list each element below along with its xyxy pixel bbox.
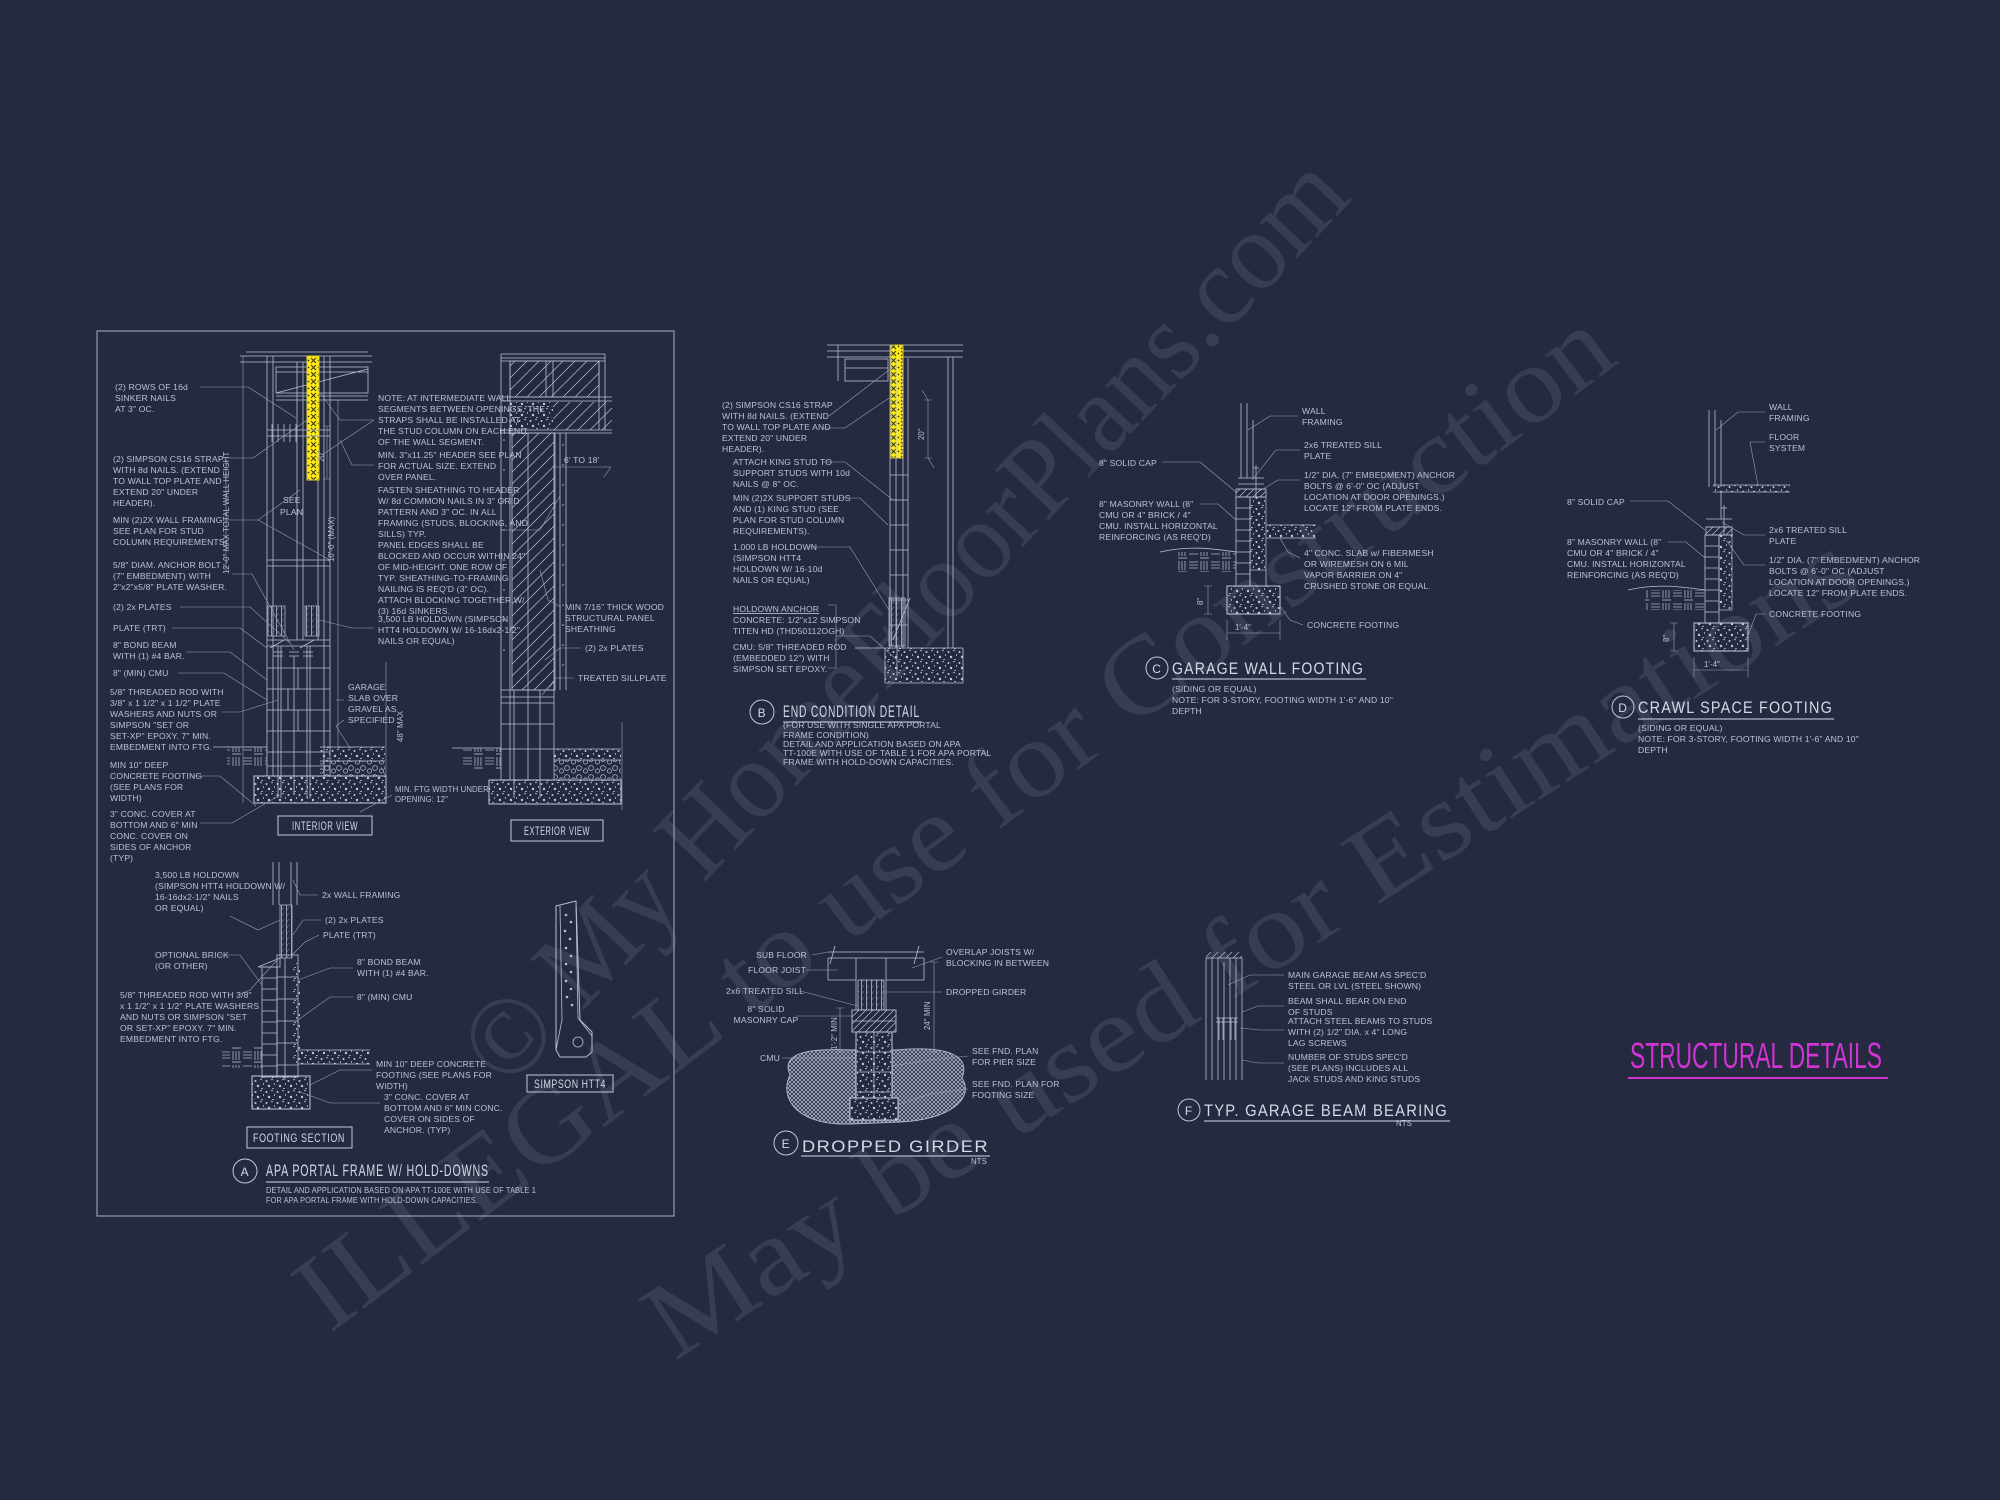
svg-text:CMU OR 4" BRICK / 4": CMU OR 4" BRICK / 4" (1567, 548, 1659, 558)
svg-text:(2) 2x PLATES: (2) 2x PLATES (113, 602, 172, 612)
svg-text:1'-2" MIN: 1'-2" MIN (830, 1017, 839, 1050)
svg-text:CONC. COVER ON: CONC. COVER ON (110, 831, 188, 841)
svg-text:3,500 LB HOLDOWN (SIMPSON: 3,500 LB HOLDOWN (SIMPSON (378, 614, 508, 624)
svg-text:PANEL EDGES SHALL BE: PANEL EDGES SHALL BE (378, 540, 484, 550)
svg-text:3,500 LB HOLDOWN: 3,500 LB HOLDOWN (155, 870, 239, 880)
svg-text:NAILS OR EQUAL): NAILS OR EQUAL) (378, 636, 455, 646)
svg-text:(EMBEDDED 12") WITH: (EMBEDDED 12") WITH (733, 653, 830, 663)
svg-text:NOTE: FOR 3-STORY, FOOTING WID: NOTE: FOR 3-STORY, FOOTING WIDTH 1'-6" A… (1172, 695, 1393, 705)
svg-text:LOCATION AT DOOR OPENINGS.): LOCATION AT DOOR OPENINGS.) (1769, 577, 1910, 587)
svg-text:EXTEND 20" UNDER: EXTEND 20" UNDER (722, 433, 807, 443)
svg-text:(SIMPSON HTT4 HOLDOWN W/: (SIMPSON HTT4 HOLDOWN W/ (155, 881, 286, 891)
svg-text:CONCRETE FOOTING: CONCRETE FOOTING (1307, 620, 1399, 630)
svg-text:8" BOND BEAM: 8" BOND BEAM (113, 640, 177, 650)
svg-text:6' TO 18': 6' TO 18' (564, 455, 600, 465)
svg-text:(7" EMBEDMENT) WITH: (7" EMBEDMENT) WITH (113, 571, 211, 581)
svg-text:2"x2"x5/8" PLATE WASHER.: 2"x2"x5/8" PLATE WASHER. (113, 582, 227, 592)
svg-text:REQUIREMENTS).: REQUIREMENTS). (733, 526, 810, 536)
svg-text:24" MIN: 24" MIN (923, 1001, 932, 1030)
svg-text:FRAMING: FRAMING (1769, 413, 1810, 423)
svg-text:16-16dx2-1/2" NAILS: 16-16dx2-1/2" NAILS (155, 892, 239, 902)
svg-text:BEAM SHALL BEAR ON END: BEAM SHALL BEAR ON END (1288, 996, 1407, 1006)
svg-text:MIN 10" DEEP: MIN 10" DEEP (110, 760, 168, 770)
svg-text:20": 20" (317, 450, 326, 462)
svg-text:NTS: NTS (1396, 1119, 1412, 1128)
svg-text:COVER ON SIDES OF: COVER ON SIDES OF (384, 1114, 475, 1124)
svg-text:2x WALL FRAMING: 2x WALL FRAMING (322, 890, 401, 900)
svg-text:WITH (1) #4 BAR.: WITH (1) #4 BAR. (357, 968, 429, 978)
svg-text:DEPTH: DEPTH (1172, 706, 1202, 716)
svg-text:48" MAX: 48" MAX (396, 710, 405, 742)
svg-text:FOOTING SIZE: FOOTING SIZE (972, 1090, 1035, 1100)
svg-text:WASHERS AND NUTS OR: WASHERS AND NUTS OR (110, 709, 217, 719)
svg-text:SIMPSON "SET OR: SIMPSON "SET OR (110, 720, 189, 730)
svg-text:SPECIFIED: SPECIFIED (348, 715, 395, 725)
svg-text:2x6 TREATED SILL: 2x6 TREATED SILL (726, 986, 804, 996)
svg-text:REINFORCING (AS REQ'D): REINFORCING (AS REQ'D) (1567, 570, 1679, 580)
svg-text:BOLTS @ 6'-0" OC (ADJUST: BOLTS @ 6'-0" OC (ADJUST (1304, 481, 1420, 491)
svg-text:8" BOND BEAM: 8" BOND BEAM (357, 957, 421, 967)
svg-text:3" CONC. COVER AT: 3" CONC. COVER AT (110, 809, 196, 819)
svg-text:NTS: NTS (971, 1157, 987, 1166)
svg-text:(OR OTHER): (OR OTHER) (155, 961, 208, 971)
svg-text:MIN. FTG WIDTH UNDER: MIN. FTG WIDTH UNDER (395, 785, 489, 794)
svg-text:CMU. INSTALL HORIZONTAL: CMU. INSTALL HORIZONTAL (1567, 559, 1686, 569)
svg-text:CMU OR 4" BRICK / 4": CMU OR 4" BRICK / 4" (1099, 510, 1191, 520)
svg-text:OR EQUAL): OR EQUAL) (155, 903, 204, 913)
svg-text:FLOOR JOIST: FLOOR JOIST (748, 965, 807, 975)
svg-text:10'-0" (MAX): 10'-0" (MAX) (327, 516, 336, 562)
svg-text:MIN (2)2X WALL FRAMING.: MIN (2)2X WALL FRAMING. (113, 515, 225, 525)
svg-text:WALL: WALL (1302, 406, 1326, 416)
svg-text:TO WALL TOP PLATE AND: TO WALL TOP PLATE AND (113, 476, 222, 486)
svg-text:NOTE: FOR 3-STORY, FOOTING WID: NOTE: FOR 3-STORY, FOOTING WIDTH 1'-6" A… (1638, 734, 1859, 744)
svg-text:HEADER).: HEADER). (113, 498, 155, 508)
svg-text:8": 8" (1662, 635, 1671, 642)
svg-text:TITEN HD (THD50112OGH): TITEN HD (THD50112OGH) (733, 626, 845, 636)
svg-text:1,000 LB HOLDOWN: 1,000 LB HOLDOWN (733, 542, 817, 552)
svg-text:TO WALL TOP PLATE AND: TO WALL TOP PLATE AND (722, 422, 831, 432)
svg-text:3/8" x 1 1/2" x 1 1/2" PLATE: 3/8" x 1 1/2" x 1 1/2" PLATE (110, 698, 221, 708)
svg-text:MIN. 3"x11.25" HEADER SEE PLAN: MIN. 3"x11.25" HEADER SEE PLAN (378, 450, 522, 460)
svg-text:TYP. SHEATHING-TO-FRAMING: TYP. SHEATHING-TO-FRAMING (378, 573, 509, 583)
svg-text:MAIN GARAGE BEAM AS SPEC'D: MAIN GARAGE BEAM AS SPEC'D (1288, 970, 1426, 980)
svg-text:BOTTOM AND 6" MIN: BOTTOM AND 6" MIN (110, 820, 198, 830)
svg-text:AND (1) KING STUD (SEE: AND (1) KING STUD (SEE (733, 504, 839, 514)
svg-text:MIN 7/16" THICK WOOD: MIN 7/16" THICK WOOD (565, 602, 664, 612)
svg-text:2x6 TREATED SILL: 2x6 TREATED SILL (1304, 440, 1382, 450)
svg-text:x 1 1/2" x 1 1/2" PLATE WASHER: x 1 1/2" x 1 1/2" PLATE WASHERS (120, 1001, 259, 1011)
svg-text:HOLDOWN ANCHOR: HOLDOWN ANCHOR (733, 604, 819, 614)
svg-text:DROPPED GIRDER: DROPPED GIRDER (946, 987, 1026, 997)
svg-text:GARAGE WALL FOOTING: GARAGE WALL FOOTING (1172, 659, 1364, 678)
svg-text:12'-0" MAX TOTAL WALL HEIGHT: 12'-0" MAX TOTAL WALL HEIGHT (222, 452, 231, 574)
svg-text:GARAGE: GARAGE (348, 682, 386, 692)
svg-text:MIN (2)2X SUPPORT STUDS: MIN (2)2X SUPPORT STUDS (733, 493, 851, 503)
svg-text:8" SOLID: 8" SOLID (747, 1004, 784, 1014)
svg-text:B: B (758, 706, 767, 720)
svg-text:BOTTOM AND 6" MIN CONC.: BOTTOM AND 6" MIN CONC. (384, 1103, 503, 1113)
svg-text:FLOOR: FLOOR (1769, 432, 1799, 442)
svg-text:LOCATE 12" FROM PLATE ENDS.: LOCATE 12" FROM PLATE ENDS. (1769, 588, 1907, 598)
svg-text:DETAIL AND APPLICATION BASED O: DETAIL AND APPLICATION BASED ON APA TT-1… (266, 1185, 536, 1195)
svg-text:NAILING IS REQ'D (3" OC).: NAILING IS REQ'D (3" OC). (378, 584, 489, 594)
svg-text:(2) 2x PLATES: (2) 2x PLATES (325, 915, 384, 925)
svg-text:AT 3" OC.: AT 3" OC. (115, 404, 154, 414)
svg-text:SLAB OVER: SLAB OVER (348, 693, 398, 703)
svg-text:COLUMN REQUIREMENTS.: COLUMN REQUIREMENTS. (113, 537, 227, 547)
svg-text:1/2" DIA. (7" EMBEDMENT) ANCHO: 1/2" DIA. (7" EMBEDMENT) ANCHOR (1769, 555, 1920, 565)
svg-text:DEPTH: DEPTH (1638, 745, 1668, 755)
svg-text:FRAMING (STUDS, BLOCKING, AND: FRAMING (STUDS, BLOCKING, AND (378, 518, 528, 528)
svg-text:WALL: WALL (1769, 402, 1793, 412)
svg-text:FOOTING (SEE PLANS FOR: FOOTING (SEE PLANS FOR (376, 1070, 492, 1080)
svg-text:CONCRETE: 1/2"x12 SIMPSON: CONCRETE: 1/2"x12 SIMPSON (733, 615, 861, 625)
svg-text:(SEE PLANS) INCLUDES ALL: (SEE PLANS) INCLUDES ALL (1288, 1063, 1408, 1073)
svg-text:(TYP): (TYP) (110, 853, 133, 863)
svg-text:WITH 8d NAILS. (EXTEND: WITH 8d NAILS. (EXTEND (113, 465, 220, 475)
svg-text:5/8" THREADED ROD WITH 3/8": 5/8" THREADED ROD WITH 3/8" (120, 990, 252, 1000)
svg-text:(FOR USE WITH SINGLE APA PORTA: (FOR USE WITH SINGLE APA PORTAL (783, 720, 941, 730)
svg-text:FRAMING: FRAMING (1302, 417, 1343, 427)
svg-text:CRAWL SPACE FOOTING: CRAWL SPACE FOOTING (1638, 698, 1833, 717)
svg-text:(2) SIMPSON CS16 STRAP: (2) SIMPSON CS16 STRAP (113, 454, 224, 464)
svg-text:EXTEND 20" UNDER: EXTEND 20" UNDER (113, 487, 198, 497)
svg-text:SYSTEM: SYSTEM (1769, 443, 1805, 453)
svg-text:STRUCTURAL DETAILS: STRUCTURAL DETAILS (1630, 1035, 1882, 1076)
svg-text:HEADER).: HEADER). (722, 444, 764, 454)
svg-text:A: A (241, 1165, 250, 1179)
svg-text:8" (MIN) CMU: 8" (MIN) CMU (113, 668, 168, 678)
svg-text:4" CONC. SLAB w/ FIBERMESH: 4" CONC. SLAB w/ FIBERMESH (1304, 548, 1434, 558)
svg-text:2x6 TREATED SILL: 2x6 TREATED SILL (1769, 525, 1847, 535)
svg-text:GRAVEL AS: GRAVEL AS (348, 704, 397, 714)
svg-text:WITH (1) #4 BAR.: WITH (1) #4 BAR. (113, 651, 185, 661)
svg-text:NAILS OR EQUAL): NAILS OR EQUAL) (733, 575, 810, 585)
svg-text:PLATE: PLATE (1304, 451, 1331, 461)
svg-text:5/8" THREADED ROD WITH: 5/8" THREADED ROD WITH (110, 687, 224, 697)
svg-text:SEE FND. PLAN: SEE FND. PLAN (972, 1046, 1038, 1056)
svg-text:TYP. GARAGE BEAM BEARING: TYP. GARAGE BEAM BEARING (1204, 1101, 1448, 1120)
svg-text:8" MASONRY WALL (8": 8" MASONRY WALL (8" (1099, 499, 1193, 509)
svg-text:INTERIOR VIEW: INTERIOR VIEW (292, 819, 358, 833)
svg-text:EMBEDMENT INTO FTG.: EMBEDMENT INTO FTG. (120, 1034, 222, 1044)
svg-text:C: C (1152, 662, 1161, 676)
svg-text:APA PORTAL FRAME W/ HOLD-DOWNS: APA PORTAL FRAME W/ HOLD-DOWNS (266, 1161, 489, 1180)
svg-text:ATTACH STEEL BEAMS TO STUDS: ATTACH STEEL BEAMS TO STUDS (1288, 1016, 1433, 1026)
svg-text:FOR ACTUAL SIZE. EXTEND: FOR ACTUAL SIZE. EXTEND (378, 461, 496, 471)
svg-text:20": 20" (917, 428, 926, 440)
svg-text:STRAPS SHALL BE INSTALLED AT: STRAPS SHALL BE INSTALLED AT (378, 415, 521, 425)
svg-text:LOCATE 12" FROM PLATE ENDS.: LOCATE 12" FROM PLATE ENDS. (1304, 503, 1442, 513)
svg-text:CMU: CMU (760, 1053, 780, 1063)
svg-text:LAG SCREWS: LAG SCREWS (1288, 1038, 1347, 1048)
svg-text:SINKER NAILS: SINKER NAILS (115, 393, 176, 403)
svg-text:EXTERIOR VIEW: EXTERIOR VIEW (524, 824, 590, 838)
svg-text:FOR APA PORTAL FRAME WITH HOLD: FOR APA PORTAL FRAME WITH HOLD-DOWN CAPA… (266, 1195, 478, 1205)
svg-text:WIDTH): WIDTH) (376, 1081, 408, 1091)
svg-text:D: D (1618, 701, 1627, 715)
svg-text:1/2" DIA. (7" EMBEDMENT) ANCHO: 1/2" DIA. (7" EMBEDMENT) ANCHOR (1304, 470, 1455, 480)
svg-text:8" (MIN) CMU: 8" (MIN) CMU (357, 992, 412, 1002)
svg-text:CONCRETE FOOTING: CONCRETE FOOTING (1769, 609, 1861, 619)
svg-text:FRAME WITH HOLD-DOWN CAPACITIE: FRAME WITH HOLD-DOWN CAPACITIES. (783, 757, 954, 767)
svg-text:EMBEDMENT INTO FTG.: EMBEDMENT INTO FTG. (110, 742, 212, 752)
svg-text:PLATE: PLATE (1769, 536, 1796, 546)
svg-text:SHEATHING: SHEATHING (565, 624, 616, 634)
svg-text:SEE PLAN FOR STUD: SEE PLAN FOR STUD (113, 526, 204, 536)
svg-text:SEE FND. PLAN FOR: SEE FND. PLAN FOR (972, 1079, 1060, 1089)
svg-text:F: F (1185, 1104, 1193, 1118)
svg-text:CONCRETE FOOTING: CONCRETE FOOTING (110, 771, 202, 781)
svg-text:END CONDITION DETAIL: END CONDITION DETAIL (783, 702, 920, 721)
svg-text:PLAN FOR STUD COLUMN: PLAN FOR STUD COLUMN (733, 515, 844, 525)
svg-text:8": 8" (1196, 598, 1205, 605)
svg-text:OVERLAP JOISTS W/: OVERLAP JOISTS W/ (946, 947, 1035, 957)
svg-text:PLATE (TRT): PLATE (TRT) (323, 930, 376, 940)
svg-text:BLOCKED AND OCCUR WITHIN 24": BLOCKED AND OCCUR WITHIN 24" (378, 551, 525, 561)
svg-text:THE STUD COLUMN ON EACH END: THE STUD COLUMN ON EACH END (378, 426, 527, 436)
svg-text:NUMBER OF STUDS SPEC'D: NUMBER OF STUDS SPEC'D (1288, 1052, 1408, 1062)
svg-text:(2) SIMPSON CS16 STRAP: (2) SIMPSON CS16 STRAP (722, 400, 833, 410)
svg-text:ATTACH KING STUD TO: ATTACH KING STUD TO (733, 457, 832, 467)
svg-text:8" MASONRY WALL (8": 8" MASONRY WALL (8" (1567, 537, 1661, 547)
svg-text:SIDES OF ANCHOR: SIDES OF ANCHOR (110, 842, 192, 852)
svg-text:1'-4": 1'-4" (1704, 660, 1720, 669)
svg-text:OR SET-XP" EPOXY. 7" MIN.: OR SET-XP" EPOXY. 7" MIN. (120, 1023, 237, 1033)
svg-text:FASTEN SHEATHING TO HEADER: FASTEN SHEATHING TO HEADER (378, 485, 519, 495)
svg-text:OR WIREMESH ON 6 MIL: OR WIREMESH ON 6 MIL (1304, 559, 1409, 569)
svg-text:NOTE: AT INTERMEDIATE WALL: NOTE: AT INTERMEDIATE WALL (378, 393, 512, 403)
svg-text:WITH (2) 1/2" DIA. x 4" LONG: WITH (2) 1/2" DIA. x 4" LONG (1288, 1027, 1407, 1037)
svg-text:CMU: 5/8" THREADED ROD: CMU: 5/8" THREADED ROD (733, 642, 847, 652)
svg-text:HTT4 HOLDOWN W/ 16-16dx2-1/2": HTT4 HOLDOWN W/ 16-16dx2-1/2" (378, 625, 520, 635)
svg-text:ATTACH BLOCKING TOGETHER W/: ATTACH BLOCKING TOGETHER W/ (378, 595, 525, 605)
svg-text:DROPPED GIRDER: DROPPED GIRDER (802, 1137, 989, 1156)
svg-text:(2) ROWS OF 16d: (2) ROWS OF 16d (115, 382, 188, 392)
svg-text:OF MID-HEIGHT. ONE ROW OF: OF MID-HEIGHT. ONE ROW OF (378, 562, 507, 572)
svg-text:W/ 8d COMMON NAILS IN 3" GRID: W/ 8d COMMON NAILS IN 3" GRID (378, 496, 520, 506)
svg-text:OPTIONAL BRICK: OPTIONAL BRICK (155, 950, 229, 960)
svg-text:E: E (782, 1137, 791, 1151)
svg-text:AND NUTS OR SIMPSON "SET: AND NUTS OR SIMPSON "SET (120, 1012, 248, 1022)
svg-text:FOR PIER SIZE: FOR PIER SIZE (972, 1057, 1036, 1067)
svg-text:MASONRY CAP: MASONRY CAP (734, 1015, 799, 1025)
svg-text:CRUSHED STONE OR EQUAL.: CRUSHED STONE OR EQUAL. (1304, 581, 1431, 591)
svg-text:SET-XP" EPOXY. 7" MIN.: SET-XP" EPOXY. 7" MIN. (110, 731, 211, 741)
svg-text:BOLTS @ 6'-0" OC (ADJUST: BOLTS @ 6'-0" OC (ADJUST (1769, 566, 1885, 576)
svg-text:TREATED SILLPLATE: TREATED SILLPLATE (578, 673, 667, 683)
svg-text:1'-4": 1'-4" (1235, 623, 1251, 632)
svg-text:3" CONC. COVER AT: 3" CONC. COVER AT (384, 1092, 470, 1102)
svg-text:OVER PANEL.: OVER PANEL. (378, 472, 436, 482)
svg-text:PLATE (TRT): PLATE (TRT) (113, 623, 166, 633)
svg-text:BLOCKING IN BETWEEN: BLOCKING IN BETWEEN (946, 958, 1049, 968)
svg-text:REINFORCING (AS REQ'D): REINFORCING (AS REQ'D) (1099, 532, 1211, 542)
svg-text:OF THE WALL SEGMENT.: OF THE WALL SEGMENT. (378, 437, 484, 447)
svg-text:HOLDOWN W/ 16-10d: HOLDOWN W/ 16-10d (733, 564, 823, 574)
svg-text:MIN 10" DEEP CONCRETE: MIN 10" DEEP CONCRETE (376, 1059, 486, 1069)
svg-text:WIDTH): WIDTH) (110, 793, 142, 803)
svg-text:SILLS) TYP.: SILLS) TYP. (378, 529, 426, 539)
svg-text:NAILS @ 8" OC.: NAILS @ 8" OC. (733, 479, 799, 489)
svg-text:CMU. INSTALL HORIZONTAL: CMU. INSTALL HORIZONTAL (1099, 521, 1218, 531)
svg-text:(SEE PLANS FOR: (SEE PLANS FOR (110, 782, 183, 792)
svg-text:5/8" DIAM. ANCHOR BOLT: 5/8" DIAM. ANCHOR BOLT (113, 560, 222, 570)
svg-text:8" SOLID CAP: 8" SOLID CAP (1567, 497, 1625, 507)
svg-text:(2) 2x PLATES: (2) 2x PLATES (585, 643, 644, 653)
svg-text:8" SOLID CAP: 8" SOLID CAP (1099, 458, 1157, 468)
svg-text:LOCATION AT DOOR OPENINGS.): LOCATION AT DOOR OPENINGS.) (1304, 492, 1445, 502)
svg-text:STRUCTURAL PANEL: STRUCTURAL PANEL (565, 613, 655, 623)
svg-text:STEEL OR LVL (STEEL SHOWN): STEEL OR LVL (STEEL SHOWN) (1288, 981, 1421, 991)
svg-text:(SIDING OR EQUAL): (SIDING OR EQUAL) (1172, 684, 1257, 694)
svg-text:PATTERN AND 3" OC. IN ALL: PATTERN AND 3" OC. IN ALL (378, 507, 497, 517)
svg-text:OPENING: 12": OPENING: 12" (395, 795, 448, 804)
svg-text:SIMPSON SET EPOXY.: SIMPSON SET EPOXY. (733, 664, 828, 674)
svg-text:FOOTING SECTION: FOOTING SECTION (253, 1131, 345, 1145)
svg-text:VAPOR BARRIER ON 4": VAPOR BARRIER ON 4" (1304, 570, 1402, 580)
svg-text:ANCHOR. (TYP): ANCHOR. (TYP) (384, 1125, 450, 1135)
svg-text:PLAN: PLAN (280, 507, 303, 517)
svg-text:SUPPORT STUDS WITH 10d: SUPPORT STUDS WITH 10d (733, 468, 850, 478)
svg-text:(SIMPSON HTT4: (SIMPSON HTT4 (733, 553, 801, 563)
svg-text:(SIDING OR EQUAL): (SIDING OR EQUAL) (1638, 723, 1723, 733)
svg-text:WITH 8d NAILS. (EXTEND: WITH 8d NAILS. (EXTEND (722, 411, 829, 421)
svg-text:JACK STUDS AND KING STUDS: JACK STUDS AND KING STUDS (1288, 1074, 1420, 1084)
svg-text:SUB FLOOR: SUB FLOOR (756, 950, 807, 960)
svg-text:SIMPSON HTT4: SIMPSON HTT4 (534, 1077, 606, 1091)
